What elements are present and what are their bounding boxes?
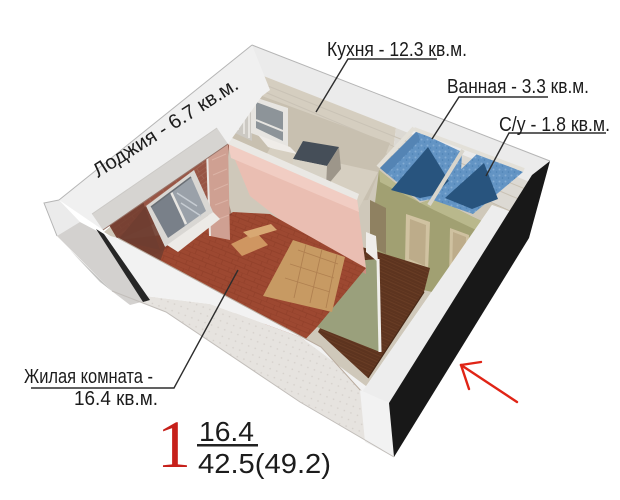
svg-text:Жилая комната -: Жилая комната - [24, 366, 153, 388]
svg-text:1: 1 [157, 406, 191, 482]
svg-text:Кухня - 12.3 кв.м.: Кухня - 12.3 кв.м. [327, 39, 467, 61]
svg-text:С/у - 1.8 кв.м.: С/у - 1.8 кв.м. [499, 114, 610, 136]
svg-text:16.4: 16.4 [199, 416, 254, 447]
svg-text:Ванная - 3.3 кв.м.: Ванная - 3.3 кв.м. [447, 76, 589, 98]
svg-text:16.4 кв.м.: 16.4 кв.м. [74, 388, 158, 410]
svg-text:42.5(49.2): 42.5(49.2) [198, 448, 331, 479]
